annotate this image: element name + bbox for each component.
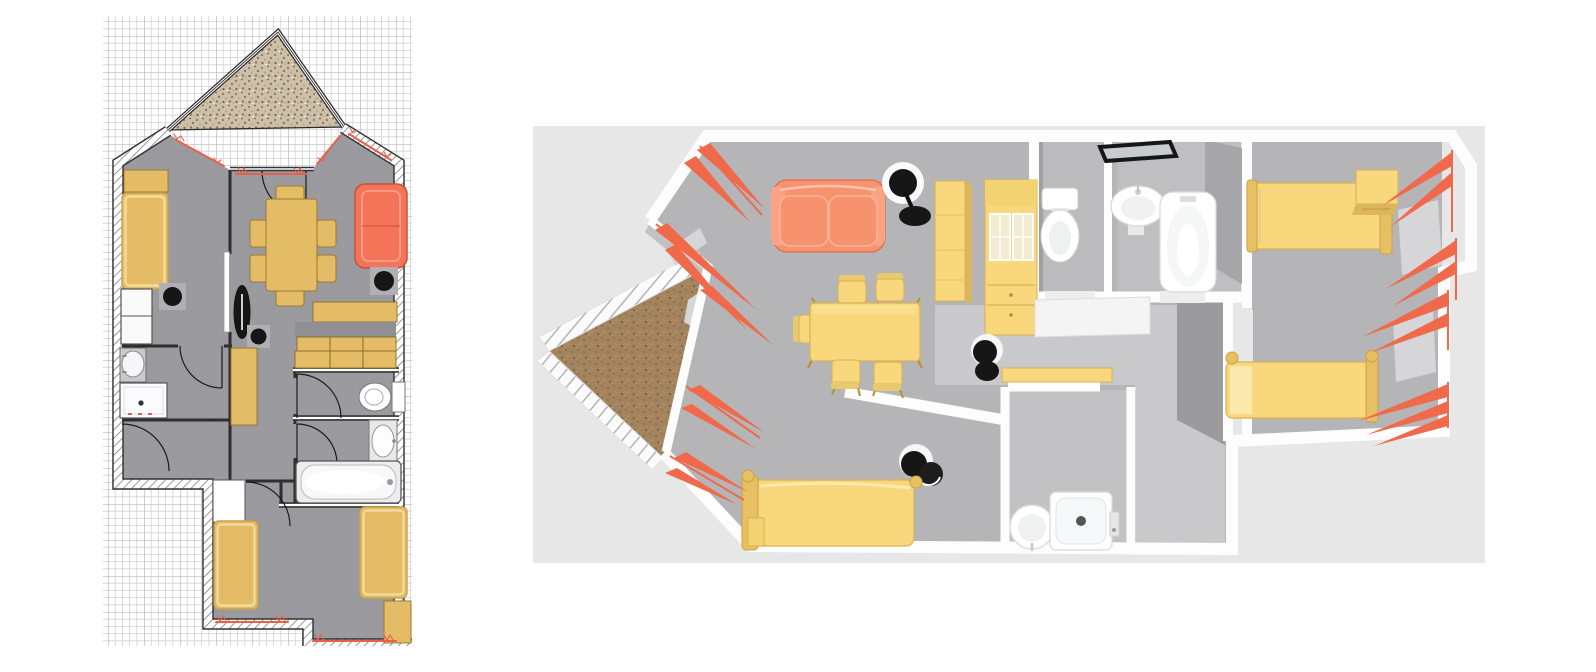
wardrobe-top-left[interactable] — [124, 170, 168, 192]
view-3d-canvas[interactable] — [533, 126, 1485, 563]
shower-tray[interactable] — [120, 383, 167, 418]
hall-cabinet[interactable] — [231, 348, 257, 425]
chest-bottom-right[interactable] — [384, 601, 411, 643]
closet-white[interactable] — [121, 289, 152, 344]
bathtub-2d[interactable] — [296, 461, 401, 503]
stool-hall[interactable] — [247, 325, 270, 348]
sliding-door-leaf[interactable] — [224, 252, 230, 332]
toilet-2d[interactable] — [359, 382, 405, 412]
single-bed-left[interactable] — [122, 193, 168, 289]
bed-bottom-3d — [742, 470, 922, 550]
stool-bedroom[interactable] — [159, 283, 186, 310]
single-bed-bottom-left[interactable] — [214, 521, 258, 609]
wall-mirror-3d — [1100, 142, 1176, 161]
step-stool-3d — [748, 518, 764, 546]
view-3d-panel[interactable] — [533, 126, 1485, 563]
floorplan-workspace — [0, 0, 1596, 672]
bathroom-washbasin[interactable] — [369, 420, 397, 463]
wall-shelf-3d — [1002, 368, 1112, 382]
washbasin-shower-room[interactable] — [120, 348, 146, 382]
single-bed-bottom-right[interactable] — [360, 507, 407, 598]
white-counter — [1035, 297, 1150, 337]
toilet-3d — [1041, 188, 1079, 262]
bathtub-3d — [1160, 192, 1216, 292]
plan-2d-canvas[interactable] — [103, 16, 412, 646]
sofa-3d — [771, 180, 885, 252]
side-stool-living[interactable] — [370, 267, 398, 295]
nightstand-3d — [1352, 170, 1398, 215]
tall-cabinet-3d — [935, 181, 972, 303]
bar-stool-3d — [971, 334, 1003, 381]
shower-tray-3d — [1050, 492, 1119, 550]
plan-2d-panel[interactable] — [103, 16, 412, 646]
kitchen-glass-cabinet-3d — [985, 180, 1037, 335]
entry-door-leaf[interactable] — [213, 480, 245, 522]
sofa-2d[interactable] — [355, 184, 407, 268]
